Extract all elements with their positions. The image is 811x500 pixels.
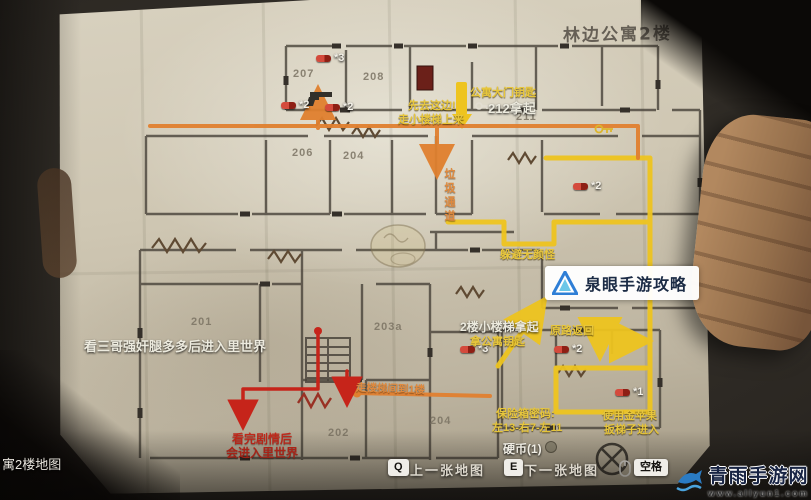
next-map-label: 下一张地图 [524,460,599,479]
pill-count: *3 [334,52,344,64]
room-label: 201 [191,316,212,328]
item-pill: *2 [281,99,309,111]
table-shadow-bottomleft [0,350,180,500]
health-drink-icon [325,104,340,111]
note-noface: 躲避无颜怪 [500,246,555,262]
note-go-stairs: 走小楼梯上来 [398,111,464,127]
coin-icon [546,442,557,453]
coin-count: 硬币(1) [503,440,542,457]
fish-logo-icon [674,466,704,494]
item-pill: *3 [316,52,344,64]
item-pill: *1 [615,386,643,398]
health-drink-icon [573,183,588,190]
hud-map-name: 寓2楼地图 [2,454,61,473]
blocked-stamp-icon [597,444,627,474]
note-return: 原路返回 [550,322,594,338]
stairs-icon [306,338,350,382]
prev-map-key[interactable]: Q [388,459,409,476]
health-drink-icon [615,389,630,396]
health-drink-icon [281,102,296,109]
pill-count: *2 [299,99,309,111]
next-map-key[interactable]: E [504,459,523,476]
watermark-site: 青雨手游网 [708,461,808,488]
prev-map-label: 上一张地图 [410,460,485,479]
room-label: 203a [374,321,402,333]
item-pill: *2 [573,180,601,192]
watermark-brand: 泉眼手游攻略 [585,271,687,295]
item-pill: *2 [554,343,582,355]
note-key-loc: 212拿起 [488,98,536,117]
note-to-1f: 走楼梯间到1楼 [356,380,425,397]
watermark-url: www.allyun1.com [708,488,809,498]
triangle-logo-icon [552,271,578,295]
room-label: 204 [343,150,364,162]
item-pill: *2 [325,101,353,113]
game-screen: { "title": "林边公寓2楼", "hud": { "bottom_le… [0,0,811,500]
pill-count: *1 [633,386,643,398]
pill-count: *2 [343,101,353,113]
health-drink-icon [554,346,569,353]
room-label: 208 [363,71,384,83]
route-red-start [314,327,322,335]
note-chute: 垃圾通道 [441,168,457,224]
pill-count: *2 [591,180,601,192]
room-label: 207 [293,68,314,80]
cabinet-icon [417,66,433,90]
watermark-corner: 青雨手游网 www.allyun1.com [674,461,809,498]
room-label: 202 [328,427,349,439]
note-stairs-item: 拿公寓钥匙 [470,333,525,349]
watermark-center: 泉眼手游攻略 [545,266,699,300]
pill-count: *2 [572,343,582,355]
health-drink-icon [316,55,331,62]
room-label: 206 [292,147,313,159]
note-safe-code: 左13-右7-左11 [492,419,562,435]
note-apple2: 扳梯子进入 [604,421,659,437]
room-label: 204 [430,415,451,427]
ghost-sketch [371,225,425,267]
note-red2: 会进入里世界 [226,444,298,461]
space-key[interactable]: 空格 [634,459,668,476]
